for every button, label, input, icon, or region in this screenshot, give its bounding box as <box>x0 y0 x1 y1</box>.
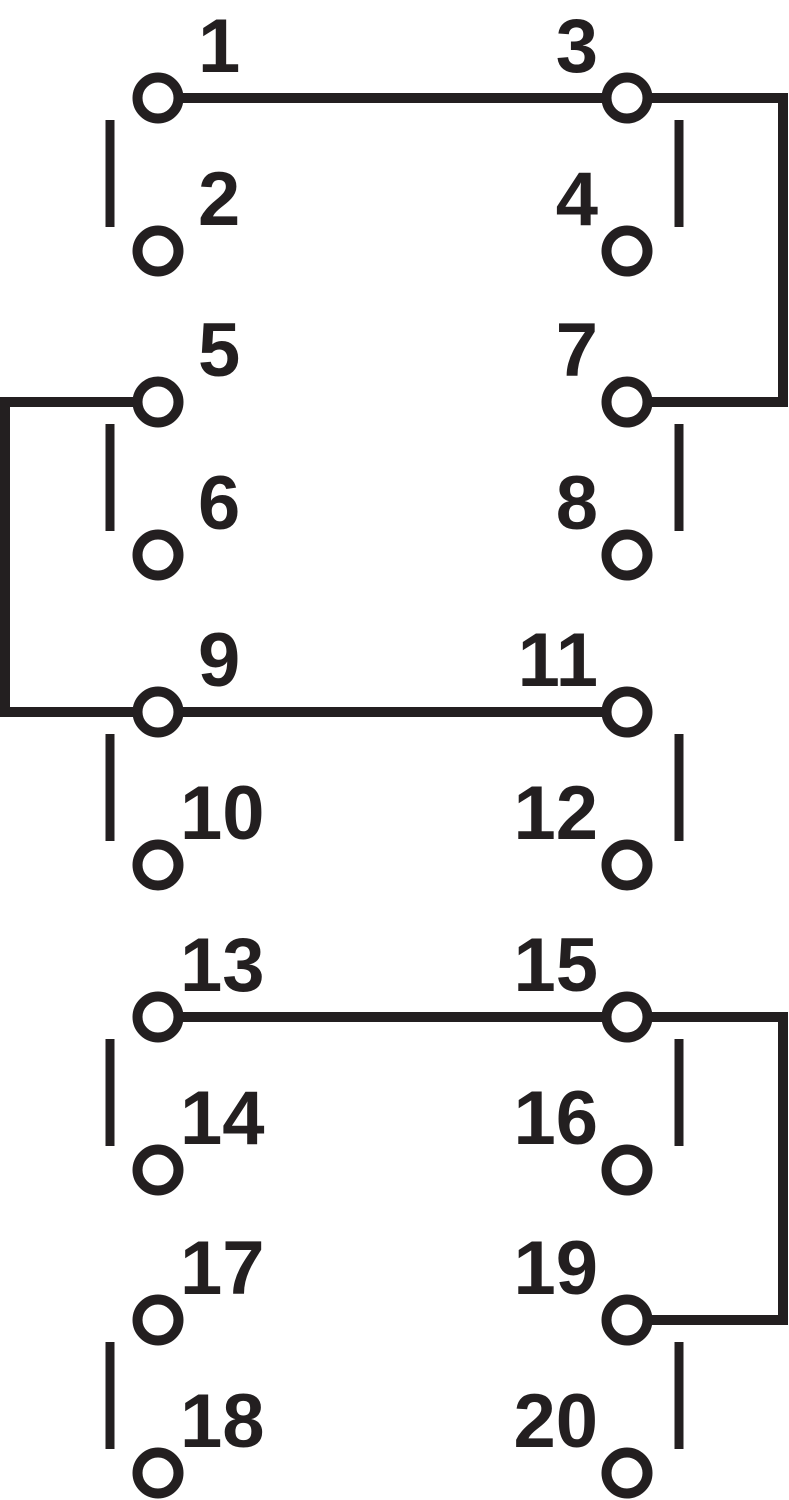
terminal-13-circle <box>138 997 179 1038</box>
terminal-12-circle <box>607 845 648 886</box>
terminal-4-label: 4 <box>556 157 598 242</box>
terminal-6-circle <box>138 535 179 576</box>
terminal-9-label: 9 <box>198 618 240 703</box>
terminal-14-circle <box>138 1150 179 1191</box>
terminal-1-label: 1 <box>198 4 240 89</box>
terminal-18-label: 18 <box>180 1379 265 1464</box>
terminal-17-circle <box>138 1300 179 1341</box>
terminal-19-label: 19 <box>513 1226 598 1311</box>
terminal-2-label: 2 <box>198 157 240 242</box>
terminal-7-label: 7 <box>556 308 598 393</box>
terminal-5-circle <box>138 382 179 423</box>
terminal-9-circle <box>138 692 179 733</box>
terminal-13-label: 13 <box>180 923 265 1008</box>
terminal-8-label: 8 <box>556 461 598 546</box>
terminal-14-label: 14 <box>180 1076 265 1161</box>
terminal-15-label: 15 <box>513 923 598 1008</box>
terminal-19-circle <box>607 1300 648 1341</box>
terminal-20-label: 20 <box>513 1379 598 1464</box>
terminal-16-label: 16 <box>513 1076 598 1161</box>
terminal-12-label: 12 <box>513 771 598 856</box>
schematic-canvas: 1 2 5 6 9 10 13 14 17 18 3 4 7 8 11 12 1… <box>0 0 789 1500</box>
terminal-8-circle <box>607 535 648 576</box>
terminal-11-label: 11 <box>518 618 598 703</box>
terminal-16-circle <box>607 1150 648 1191</box>
terminal-5-label: 5 <box>198 308 240 393</box>
terminal-4-circle <box>607 231 648 272</box>
terminal-2-circle <box>138 231 179 272</box>
terminal-6-label: 6 <box>198 461 240 546</box>
switch-schematic-diagram: 1 2 5 6 9 10 13 14 17 18 3 4 7 8 11 12 1… <box>0 0 789 1500</box>
terminal-1-circle <box>138 78 179 119</box>
terminal-7-circle <box>607 382 648 423</box>
terminal-3-label: 3 <box>556 4 598 89</box>
terminal-15-circle <box>607 997 648 1038</box>
terminal-20-circle <box>607 1453 648 1494</box>
terminal-10-label: 10 <box>180 771 265 856</box>
terminal-17-label: 17 <box>180 1226 265 1311</box>
terminal-10-circle <box>138 845 179 886</box>
terminal-3-circle <box>607 78 648 119</box>
terminal-18-circle <box>138 1453 179 1494</box>
terminal-11-circle <box>607 692 648 733</box>
